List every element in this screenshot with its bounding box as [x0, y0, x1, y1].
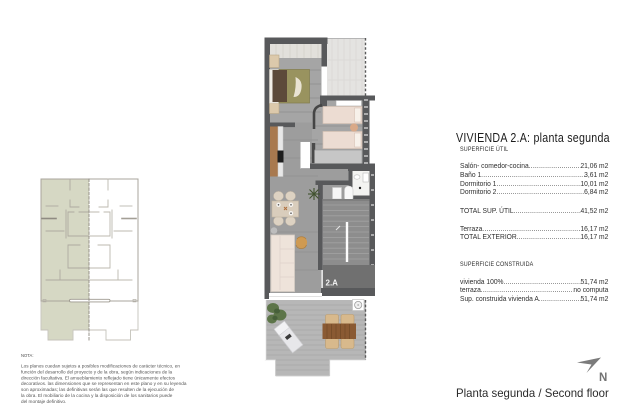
svg-text:N: N	[599, 372, 607, 384]
svg-text:2.A: 2.A	[326, 279, 339, 288]
